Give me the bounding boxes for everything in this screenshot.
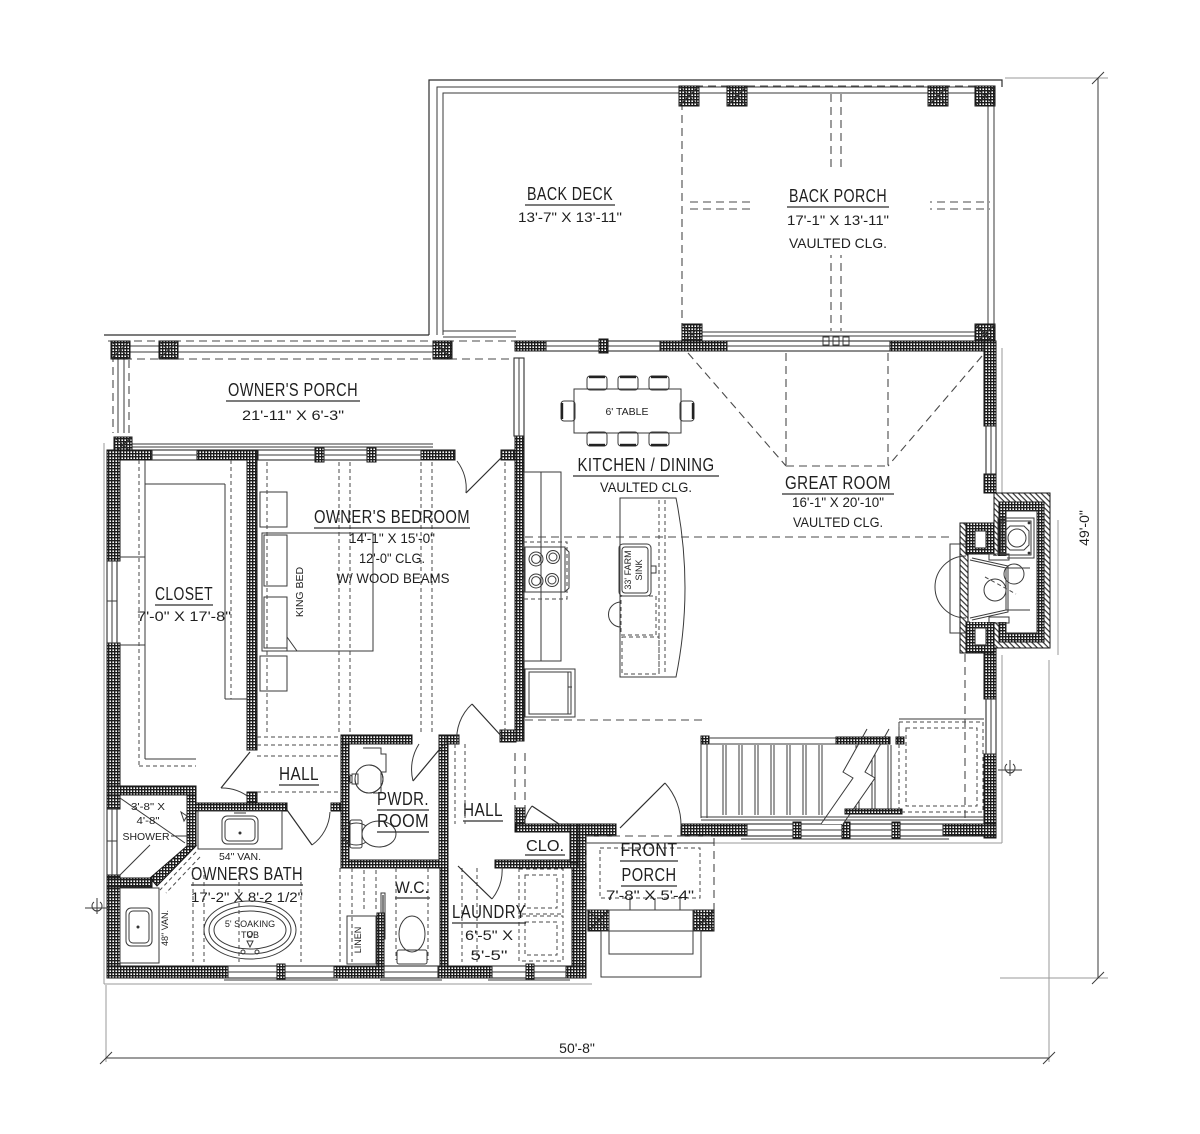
svg-text:CLO.: CLO. bbox=[526, 838, 564, 855]
svg-text:3'-8" X: 3'-8" X bbox=[131, 801, 165, 813]
svg-text:5' SOAKING: 5' SOAKING bbox=[225, 919, 275, 929]
svg-text:16'-1" X 20'-10": 16'-1" X 20'-10" bbox=[792, 494, 884, 510]
svg-text:SINK: SINK bbox=[634, 559, 644, 580]
svg-text:HALL: HALL bbox=[279, 764, 319, 784]
svg-text:FRONT: FRONT bbox=[621, 840, 678, 860]
svg-text:OWNER'S PORCH: OWNER'S PORCH bbox=[228, 380, 358, 400]
svg-text:6'-5" X: 6'-5" X bbox=[465, 927, 514, 943]
svg-text:17'-2" X 8'-2 1/2": 17'-2" X 8'-2 1/2" bbox=[191, 889, 303, 905]
svg-text:7'-8" X 5'-4": 7'-8" X 5'-4" bbox=[606, 887, 694, 903]
svg-text:50'-8": 50'-8" bbox=[559, 1040, 595, 1056]
svg-text:BACK DECK: BACK DECK bbox=[527, 184, 613, 204]
svg-text:13'-7" X 13'-11": 13'-7" X 13'-11" bbox=[518, 209, 622, 225]
svg-text:48" VAN.: 48" VAN. bbox=[160, 910, 170, 946]
svg-text:W.C.: W.C. bbox=[395, 878, 429, 897]
svg-text:KING BED: KING BED bbox=[294, 566, 306, 617]
svg-text:TUB: TUB bbox=[241, 930, 259, 940]
svg-text:PORCH: PORCH bbox=[622, 865, 677, 885]
svg-text:33' FARM: 33' FARM bbox=[623, 550, 633, 589]
svg-text:OWNER'S BEDROOM: OWNER'S BEDROOM bbox=[314, 507, 470, 527]
svg-text:ROOM: ROOM bbox=[377, 811, 429, 831]
svg-text:4'-8": 4'-8" bbox=[137, 815, 160, 827]
svg-text:W/ WOOD BEAMS: W/ WOOD BEAMS bbox=[337, 570, 450, 586]
svg-text:HALL: HALL bbox=[463, 800, 503, 820]
svg-text:SHOWER: SHOWER bbox=[123, 831, 170, 843]
svg-text:VAULTED CLG.: VAULTED CLG. bbox=[600, 479, 692, 495]
svg-text:LINEN: LINEN bbox=[353, 927, 363, 954]
svg-text:KITCHEN / DINING: KITCHEN / DINING bbox=[578, 455, 715, 475]
svg-text:VAULTED CLG.: VAULTED CLG. bbox=[793, 514, 883, 530]
svg-text:12'-0" CLG.: 12'-0" CLG. bbox=[359, 550, 425, 566]
svg-text:CLOSET: CLOSET bbox=[155, 584, 213, 604]
svg-text:17'-1" X 13'-11": 17'-1" X 13'-11" bbox=[787, 212, 889, 228]
svg-text:21'-11" X 6'-3": 21'-11" X 6'-3" bbox=[242, 407, 344, 423]
svg-text:GREAT ROOM: GREAT ROOM bbox=[785, 473, 891, 493]
svg-text:5'-5": 5'-5" bbox=[471, 947, 508, 963]
svg-text:LAUNDRY: LAUNDRY bbox=[452, 902, 526, 922]
svg-text:6' TABLE: 6' TABLE bbox=[605, 406, 648, 418]
svg-text:54" VAN.: 54" VAN. bbox=[219, 851, 261, 863]
svg-text:OWNERS BATH: OWNERS BATH bbox=[191, 864, 303, 884]
svg-text:49'-0": 49'-0" bbox=[1076, 510, 1092, 546]
svg-text:PWDR.: PWDR. bbox=[377, 789, 429, 809]
svg-text:14'-1" X 15'-0": 14'-1" X 15'-0" bbox=[349, 530, 435, 546]
svg-text:VAULTED CLG.: VAULTED CLG. bbox=[789, 235, 887, 251]
svg-text:BACK PORCH: BACK PORCH bbox=[789, 186, 887, 206]
svg-text:7'-0" X 17'-8": 7'-0" X 17'-8" bbox=[137, 608, 231, 624]
